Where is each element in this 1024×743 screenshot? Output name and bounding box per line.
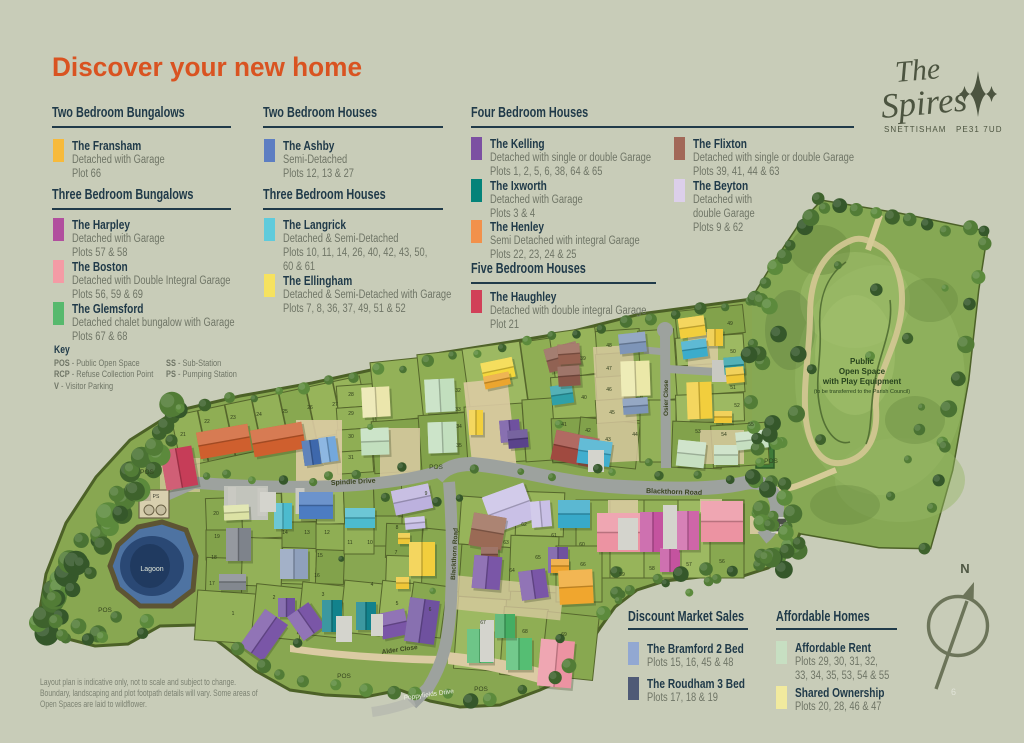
svg-text:27: 27 [332, 402, 338, 408]
svg-text:2: 2 [273, 595, 276, 601]
svg-text:POS: POS [764, 458, 778, 465]
svg-text:15: 15 [317, 553, 323, 559]
svg-text:17: 17 [209, 581, 215, 587]
svg-text:42: 42 [585, 428, 591, 434]
svg-text:58: 58 [649, 566, 655, 572]
svg-text:N: N [960, 561, 969, 576]
svg-text:Public: Public [850, 357, 875, 366]
svg-text:34: 34 [456, 424, 462, 430]
svg-text:61: 61 [551, 533, 557, 539]
svg-text:22: 22 [204, 419, 210, 425]
svg-text:7: 7 [395, 550, 398, 556]
svg-text:13: 13 [304, 530, 310, 536]
svg-text:5: 5 [396, 601, 399, 607]
svg-text:52: 52 [734, 403, 740, 409]
svg-text:Open Space: Open Space [839, 367, 886, 376]
svg-text:9: 9 [425, 491, 428, 497]
svg-text:45: 45 [609, 410, 615, 416]
svg-text:PE31 7UD: PE31 7UD [956, 125, 1003, 134]
svg-text:30: 30 [348, 434, 354, 440]
svg-text:48: 48 [606, 343, 612, 349]
svg-text:66: 66 [580, 562, 586, 568]
svg-text:POS: POS [337, 673, 351, 680]
svg-text:57: 57 [686, 562, 692, 568]
svg-text:SNETTISHAM: SNETTISHAM [884, 125, 947, 134]
svg-text:8: 8 [396, 525, 399, 531]
svg-text:33: 33 [455, 407, 461, 413]
svg-text:65: 65 [535, 555, 541, 561]
svg-text:POS: POS [429, 464, 443, 471]
svg-text:63: 63 [503, 540, 509, 546]
svg-text:14: 14 [282, 530, 288, 536]
svg-text:Spires: Spires [879, 80, 968, 126]
svg-text:10: 10 [367, 540, 373, 546]
svg-text:POS: POS [474, 686, 488, 693]
svg-text:19: 19 [214, 534, 220, 540]
svg-text:18: 18 [211, 555, 217, 561]
svg-text:24: 24 [256, 412, 262, 418]
svg-text:49: 49 [727, 321, 733, 327]
svg-text:47: 47 [606, 366, 612, 372]
svg-text:(to be transferred to the Pari: (to be transferred to the Parish Council… [814, 389, 910, 395]
svg-text:67: 67 [480, 620, 486, 626]
svg-text:6: 6 [951, 687, 956, 697]
svg-text:39: 39 [580, 356, 586, 362]
svg-text:54: 54 [721, 432, 727, 438]
svg-text:55: 55 [748, 422, 754, 428]
svg-text:23: 23 [230, 415, 236, 421]
svg-text:31: 31 [348, 455, 354, 461]
svg-text:20: 20 [213, 511, 219, 517]
svg-text:44: 44 [632, 432, 638, 438]
svg-text:68: 68 [522, 629, 528, 635]
svg-text:46: 46 [606, 387, 612, 393]
svg-text:69: 69 [561, 632, 567, 638]
svg-text:29: 29 [348, 411, 354, 417]
svg-text:28: 28 [348, 392, 354, 398]
svg-text:35: 35 [456, 443, 462, 449]
svg-text:Osier Close: Osier Close [663, 379, 670, 416]
svg-text:40: 40 [581, 395, 587, 401]
svg-text:26: 26 [307, 405, 313, 411]
svg-text:with Play Equipment: with Play Equipment [822, 377, 902, 386]
svg-text:PS: PS [153, 494, 160, 500]
svg-text:53: 53 [695, 429, 701, 435]
svg-text:62: 62 [521, 522, 527, 528]
svg-text:25: 25 [282, 409, 288, 415]
svg-text:16: 16 [314, 573, 320, 579]
svg-text:12: 12 [324, 530, 330, 536]
svg-text:11: 11 [347, 540, 352, 546]
svg-text:POS: POS [140, 469, 154, 476]
svg-text:POS: POS [98, 607, 112, 614]
svg-text:59: 59 [619, 572, 625, 578]
svg-text:50: 50 [730, 349, 736, 355]
svg-text:43: 43 [605, 437, 611, 443]
svg-text:60: 60 [579, 542, 585, 548]
svg-text:Lagoon: Lagoon [140, 566, 163, 573]
svg-text:6: 6 [429, 607, 432, 613]
svg-text:41: 41 [561, 422, 567, 428]
svg-text:32: 32 [455, 388, 461, 394]
svg-text:4: 4 [371, 582, 374, 588]
svg-text:21: 21 [180, 432, 186, 438]
svg-text:1: 1 [232, 611, 235, 617]
svg-text:64: 64 [509, 568, 515, 574]
svg-text:3: 3 [322, 592, 325, 598]
svg-text:56: 56 [719, 559, 725, 565]
svg-text:51: 51 [730, 385, 736, 391]
